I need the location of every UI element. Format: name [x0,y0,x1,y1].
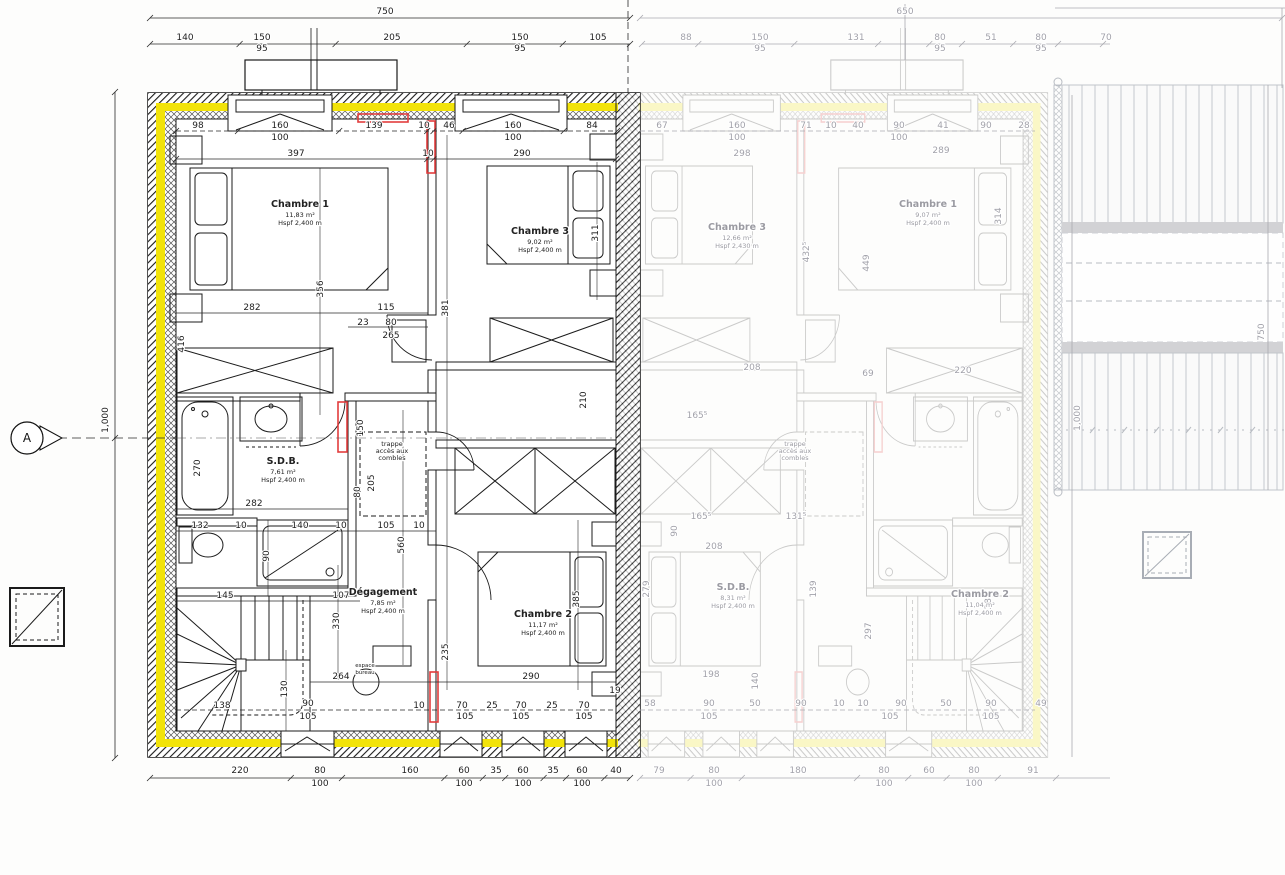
dim-label: 80 [708,766,720,776]
dim-label: 98 [192,121,204,131]
dim-label: 95 [514,44,525,54]
dim-label: 90 [895,699,907,709]
dim-label: 264 [332,672,349,682]
dim-label: 165⁵ [687,411,708,421]
dim-label: 90 [980,121,992,131]
dim-label: 145 [216,591,233,601]
dim-label: 314 [994,207,1004,224]
dim-label: 105 [589,33,606,43]
dim-label: 80 [314,766,326,776]
floor-plan-canvas: A 75014015095205150951059816010013910461… [0,0,1285,875]
dim-label: 205 [367,474,377,491]
dim-label: 49 [1035,699,1047,709]
dim-label: 90 [670,525,680,537]
dim-label: 150 [253,33,270,43]
dim-label: 107 [332,591,349,601]
dim-label: 311 [591,224,601,241]
dim-label: 205 [383,33,400,43]
dim-label: 35 [547,766,558,776]
dim-label: 100 [504,133,521,143]
dim-label: 46 [443,121,455,131]
roof-window-legend [10,588,64,646]
blueprint-svg: A 75014015095205150951059816010013910461… [0,0,1285,875]
dim-label: 100 [271,133,288,143]
dim-label: 150 [356,419,366,436]
dim-label: 80 [934,33,946,43]
dim-label: 208 [743,363,760,373]
dim-label: 235 [441,643,451,660]
dim-label: 220 [231,766,248,776]
dim-label: 10 [335,521,347,531]
dim-label: 282 [245,499,262,509]
dim-label: 100 [573,779,590,789]
dim-label: 432⁵ [802,241,812,262]
dim-label: 67 [656,121,667,131]
dim-label: 91 [1027,766,1038,776]
dim-label: 560 [397,536,407,553]
insulation-band-left [156,103,165,747]
dim-label: 95 [256,44,267,54]
dim-label: espace [355,663,375,669]
dim-label: 650 [896,7,913,17]
dim-label: 10 [235,521,247,531]
dim-label: 10 [422,149,434,159]
dim-label: 330 [332,612,342,629]
dim-label: 297 [864,622,874,639]
dim-label: 279 [642,580,652,597]
dim-label: 180 [789,766,806,776]
dim-label: 90 [985,699,997,709]
dim-label: 140 [176,33,193,43]
dim-label: 140 [291,521,308,531]
dim-label: 165⁵ [691,512,712,522]
roof-window-symbol-right [1143,532,1191,578]
section-marker-label: A [23,431,32,445]
dim-label: 100 [514,779,531,789]
dim-label: 105 [982,712,999,722]
dim-label: 385 [572,590,582,607]
exterior-wall-outline [148,93,640,757]
dim-label: 50 [940,699,952,709]
dim-label: 1,000 [101,407,111,433]
dim-label: 220 [954,366,971,376]
dim-label: 28 [1018,121,1030,131]
dim-label: 51 [985,33,996,43]
dim-label: 290 [513,149,530,159]
dim-label: 416 [177,335,187,352]
dim-label: 35 [490,766,501,776]
dim-label: 69 [862,369,874,379]
dim-label: 90 [302,699,314,709]
dim-label: 100 [965,779,982,789]
dim-label: 208 [705,542,722,552]
dim-label: 60 [458,766,470,776]
dim-label: 139 [365,121,382,131]
dim-label: 95 [1035,44,1046,54]
dim-label: 140 [751,672,761,689]
dim-label: 198 [702,670,719,680]
dim-label: 132 [191,521,208,531]
dim-label: 160 [728,121,745,131]
insulation-band-bottom [156,739,618,747]
dim-label: 84 [586,121,598,131]
dim-label: 90 [795,699,807,709]
dim-label: 105 [575,712,592,722]
dim-label: 10 [857,699,869,709]
dim-label: 397 [287,149,304,159]
roof-terrace-decking [1054,78,1285,496]
dim-label: 80 [878,766,890,776]
dim-label: 88 [680,33,692,43]
dim-label: 282 [243,303,260,313]
dim-label: 150 [751,33,768,43]
dim-label: 10 [833,699,845,709]
dim-label: 100 [875,779,892,789]
dim-label: 70 [1100,33,1112,43]
dim-label: 90 [703,699,715,709]
dim-label: 95 [934,44,945,54]
dim-label: 1,000 [1073,405,1083,431]
dim-label: 40 [852,121,864,131]
dim-label: 100 [311,779,328,789]
dim-label: 105 [512,712,529,722]
dim-label: 41 [937,121,948,131]
dim-label: 10 [418,121,430,131]
dim-label: 80 [968,766,980,776]
dim-label: 95 [754,44,765,54]
floor-plan-left-unit [148,28,640,757]
dim-label: 100 [705,779,722,789]
dim-label: 60 [923,766,935,776]
dim-label: 10 [825,121,837,131]
dim-label: 19 [609,686,621,696]
dim-label: bureau [355,670,374,676]
section-marker: A [11,422,62,454]
dim-label: 289 [932,146,949,156]
dim-label: 139 [809,580,819,597]
dim-label: 25 [546,701,557,711]
dim-label: 105 [881,712,898,722]
dim-label: 750 [376,7,393,17]
dim-label: 138 [213,701,230,711]
dim-label: 105 [700,712,717,722]
dim-label: 70 [515,701,527,711]
dim-label: 60 [517,766,529,776]
dim-label: 105 [456,712,473,722]
dim-label: 356 [316,280,326,297]
dim-label: 131⁵ [786,512,807,522]
dim-label: 115 [377,303,394,313]
dim-label: 100 [890,133,907,143]
dim-label: 60 [576,766,588,776]
floor-plan-right-unit-faded [619,28,1047,757]
dim-label: 381 [441,299,451,316]
dim-label: 100 [728,133,745,143]
dim-label: 265 [382,331,399,341]
dim-label: 90 [262,550,272,562]
dim-label: 70 [456,701,468,711]
dim-label: 449 [862,254,872,271]
dim-label: 90 [893,121,905,131]
dim-label: 80 [385,318,397,328]
dim-label: 10 [413,701,425,711]
dim-label: 160 [504,121,521,131]
dim-label: 290 [522,672,539,682]
dim-label: 23 [357,318,368,328]
dim-label: 105 [299,712,316,722]
dim-label: 160 [401,766,418,776]
dim-label: 270 [193,459,203,476]
dim-label: 150 [511,33,528,43]
dim-label: 130 [280,680,290,697]
dim-label: 160 [271,121,288,131]
dim-label: 131 [847,33,864,43]
dim-label: 10 [413,521,425,531]
dim-label: 750 [1257,323,1267,340]
dim-label: 58 [644,699,656,709]
dim-label: 70 [578,701,590,711]
dim-label: 50 [749,699,761,709]
dim-label: 40 [610,766,622,776]
dim-label: 298 [733,149,750,159]
dim-label: 71 [800,121,811,131]
dim-label: 80 [353,486,363,498]
dim-label: 210 [579,391,589,408]
dim-label: 79 [653,766,665,776]
dim-label: 100 [455,779,472,789]
dim-label: 80 [1035,33,1047,43]
dim-label: 105 [377,521,394,531]
dim-label: 25 [486,701,497,711]
